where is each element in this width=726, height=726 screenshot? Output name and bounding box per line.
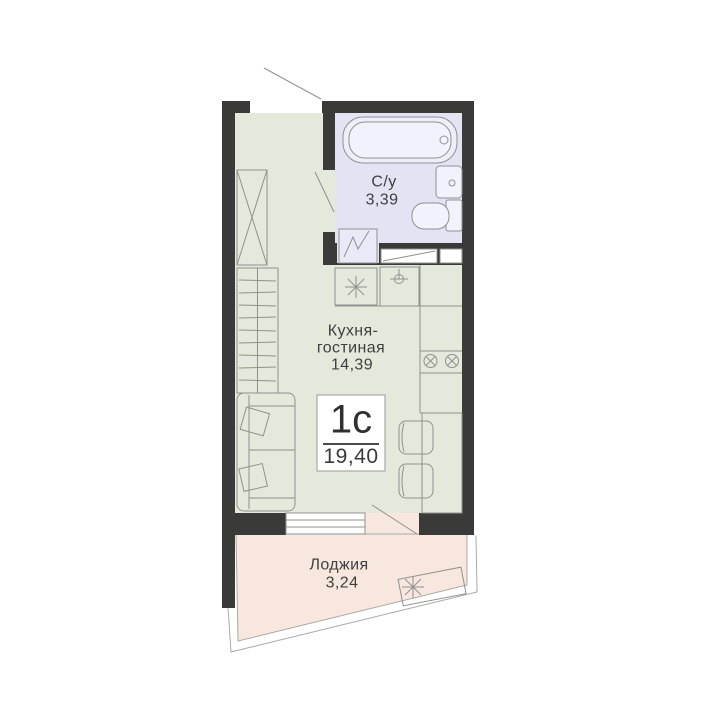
toilet-icon: [412, 200, 462, 231]
unit-type-label: 1с: [330, 398, 372, 443]
wall-bathroom-upper: [323, 113, 335, 170]
kitchen-name-label-line1: Кухня-: [328, 323, 379, 340]
bathtub-icon: [343, 117, 457, 163]
floor-plan: С/у 3,39 Кухня- гостиная 14,39 1с 19,40 …: [0, 0, 726, 726]
duct-niche-icon: [440, 249, 462, 263]
wall-bottom-right: [419, 513, 474, 535]
bathroom-area-label: 3,39: [366, 192, 399, 209]
bathroom-sink-icon: [436, 166, 462, 198]
shower-tray-icon: [339, 229, 377, 263]
kitchen-area-label: 14,39: [331, 357, 373, 374]
kitchen-name-label-line2: гостиная: [317, 340, 385, 357]
wall-top-right: [322, 101, 474, 113]
wall-bottom-left: [222, 513, 286, 535]
loggia-name-label: Лоджия: [309, 557, 368, 574]
loggia-area-label: 3,24: [326, 575, 359, 592]
entry-door-swing: [264, 68, 321, 99]
window-icon: [286, 513, 365, 534]
wall-right: [462, 101, 474, 535]
wall-bathroom-lower: [323, 232, 335, 265]
bathroom-name-label: С/у: [371, 174, 396, 191]
unit-area-label: 19,40: [323, 445, 378, 469]
